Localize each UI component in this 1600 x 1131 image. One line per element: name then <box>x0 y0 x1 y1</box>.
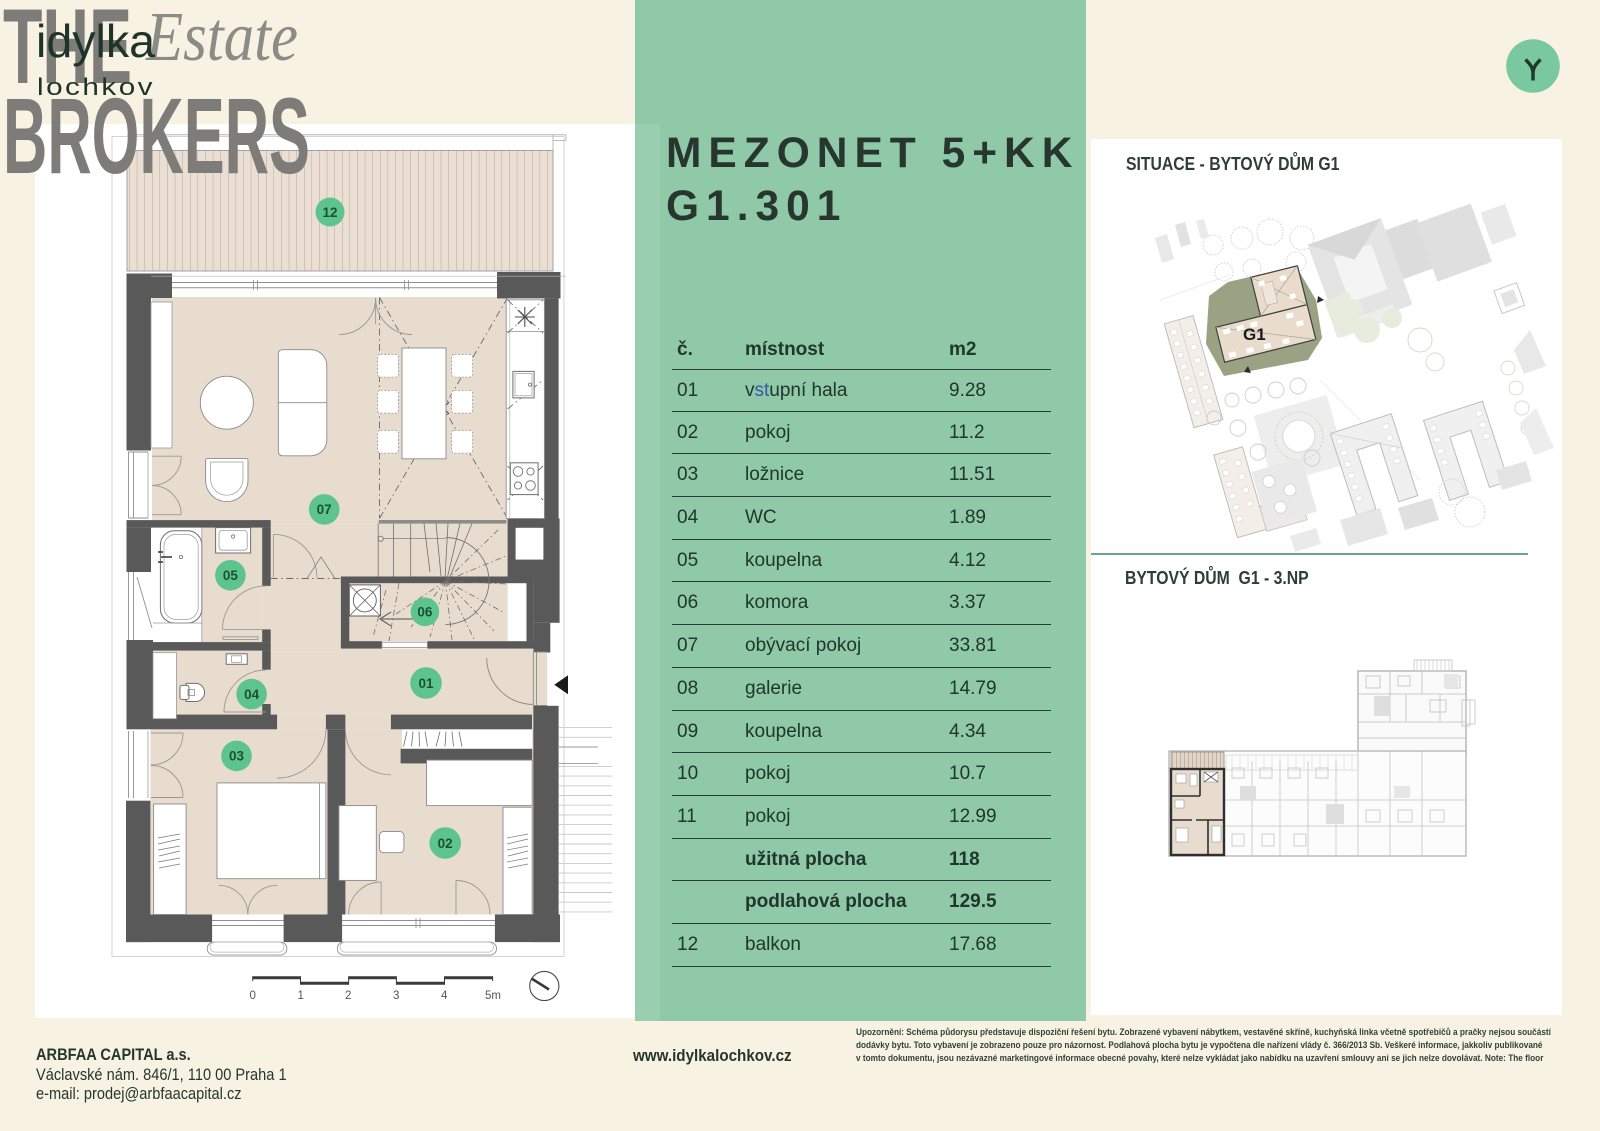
svg-text:2: 2 <box>345 990 351 1002</box>
svg-text:07: 07 <box>317 502 332 517</box>
svg-text:06: 06 <box>417 605 433 620</box>
svg-text:4: 4 <box>441 990 448 1002</box>
svg-text:Estate: Estate <box>145 0 298 76</box>
svg-text:0: 0 <box>250 990 256 1002</box>
svg-text:G1: G1 <box>1243 325 1266 344</box>
svg-text:lochkov: lochkov <box>37 74 155 101</box>
svg-text:01: 01 <box>418 676 434 691</box>
svg-text:02: 02 <box>438 836 453 851</box>
svg-text:3: 3 <box>393 990 399 1002</box>
svg-text:idylka: idylka <box>36 15 155 67</box>
svg-text:03: 03 <box>229 749 245 764</box>
svg-text:1: 1 <box>298 990 304 1002</box>
svg-text:5m: 5m <box>485 990 501 1002</box>
svg-text:12: 12 <box>322 205 337 220</box>
svg-text:05: 05 <box>223 568 239 583</box>
svg-text:04: 04 <box>244 687 260 702</box>
